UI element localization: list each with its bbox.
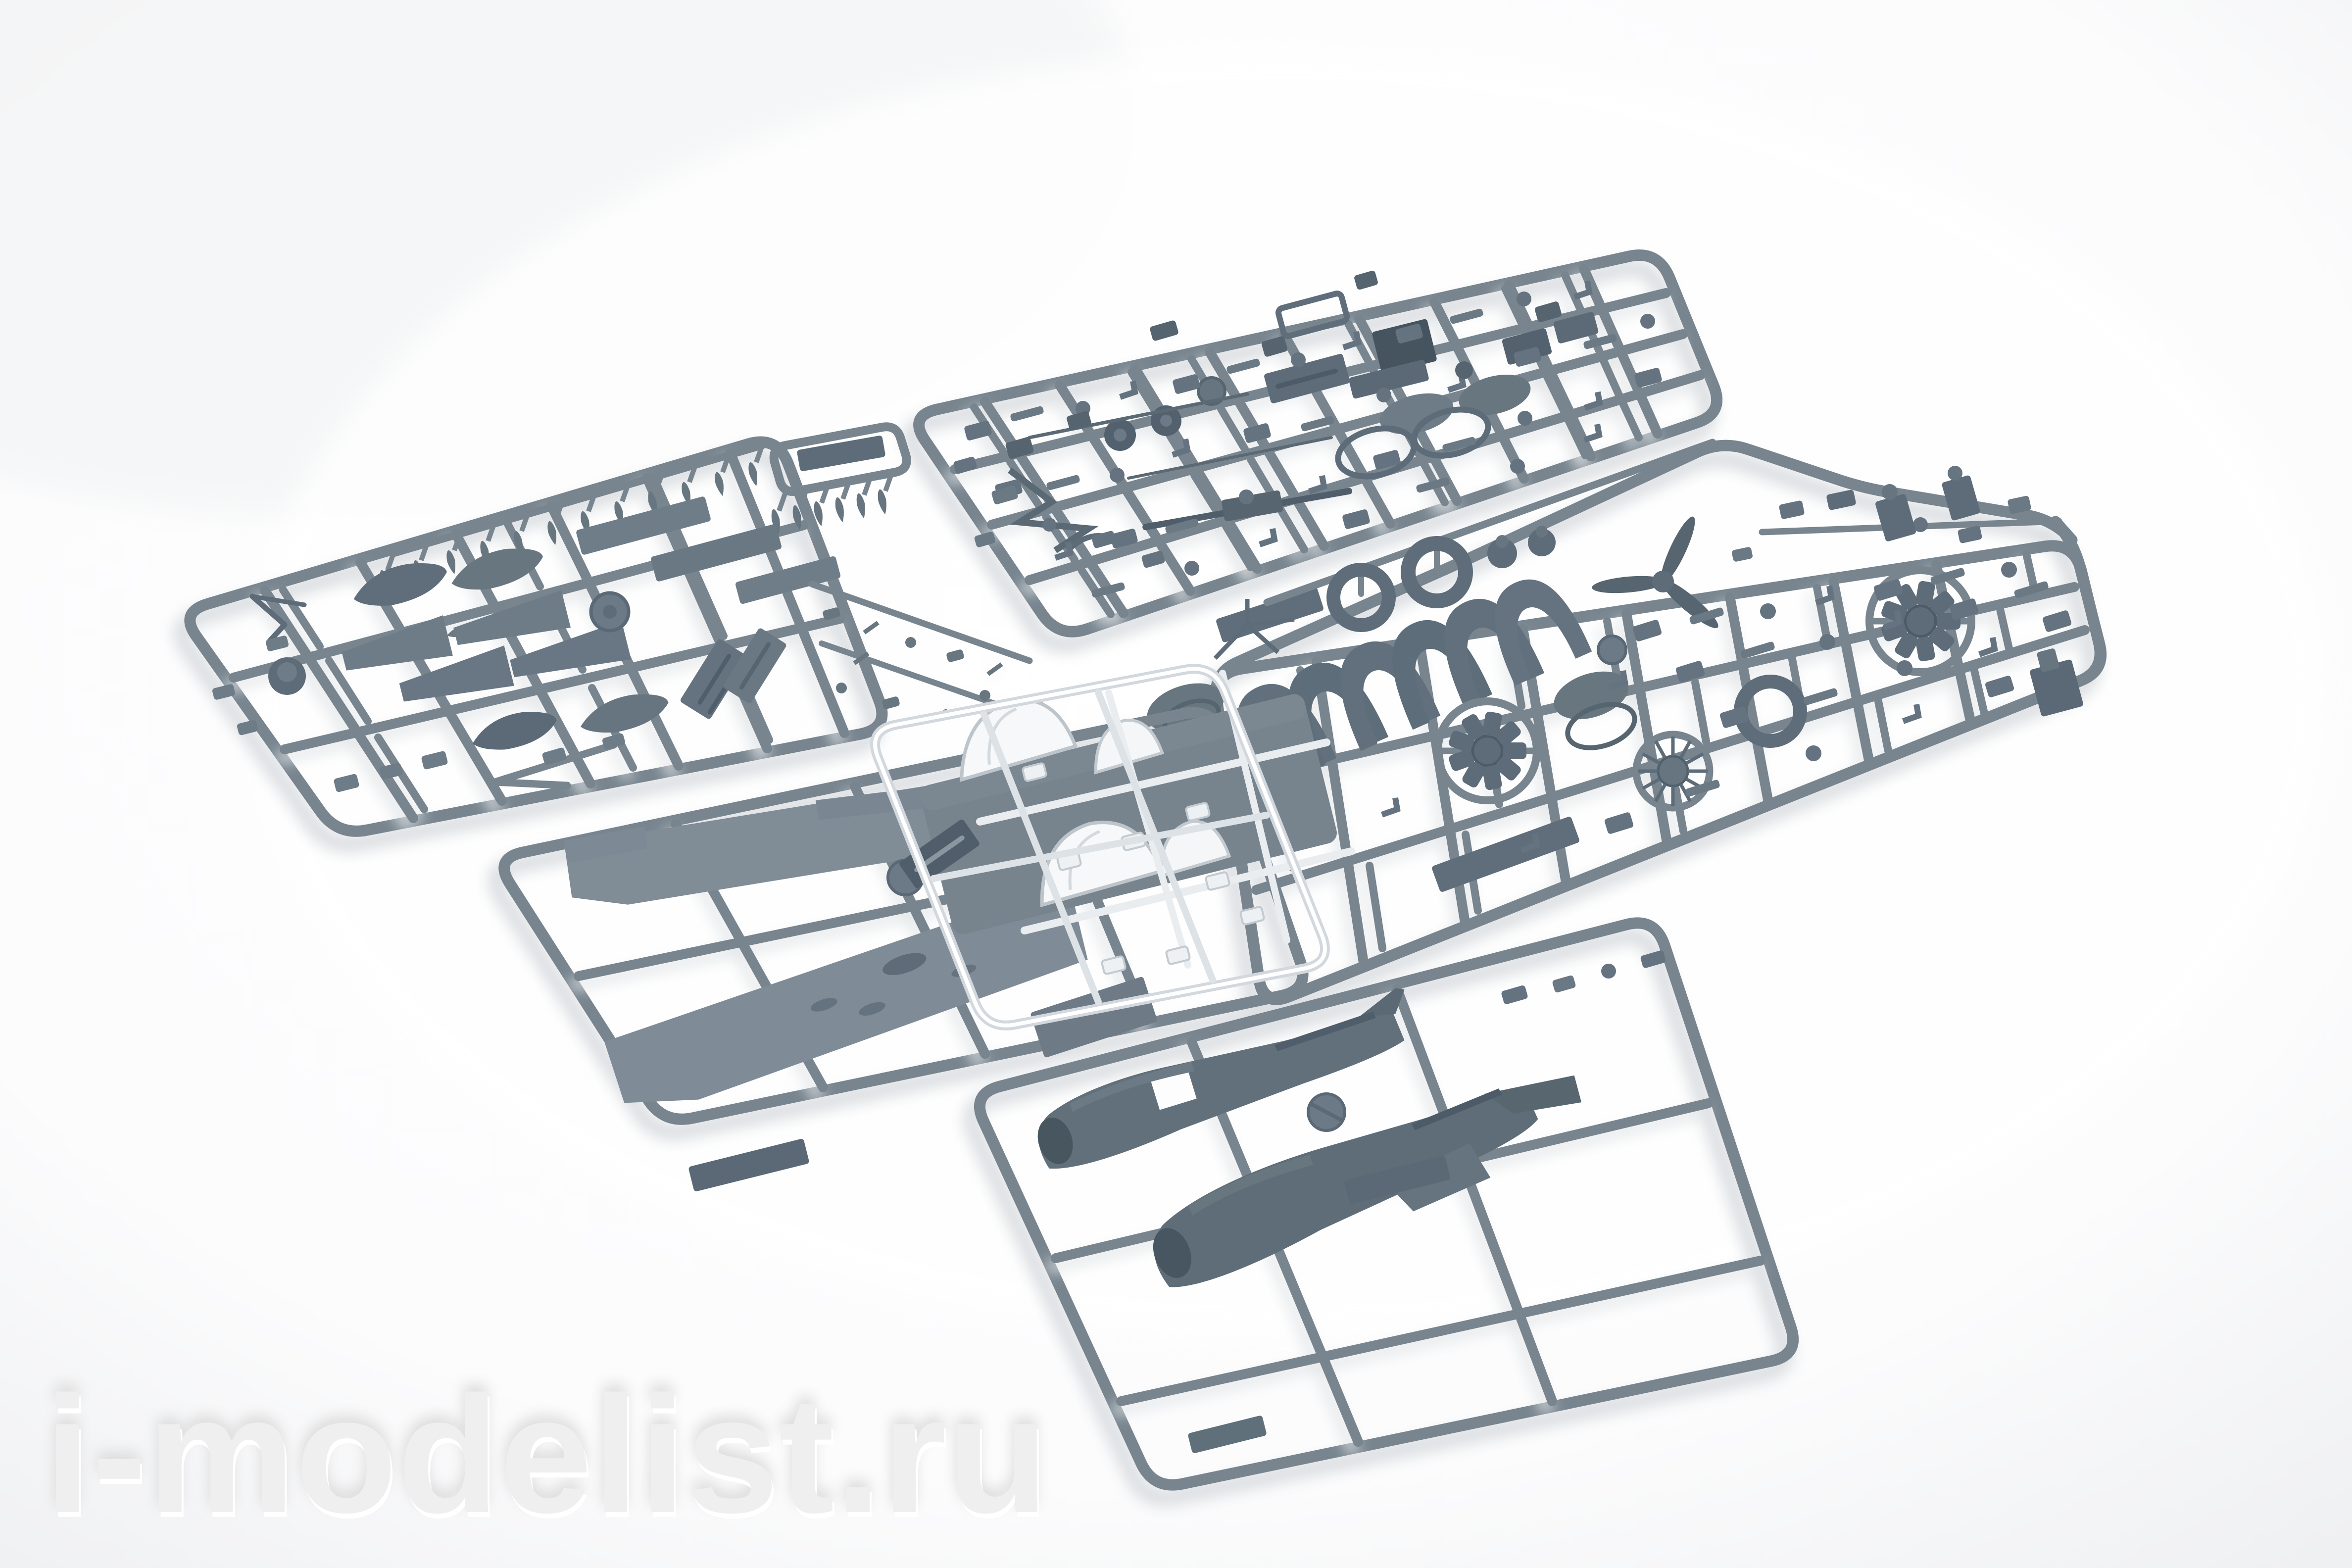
svg-text:i-modelist.ru: i-modelist.ru <box>45 1362 1049 1548</box>
